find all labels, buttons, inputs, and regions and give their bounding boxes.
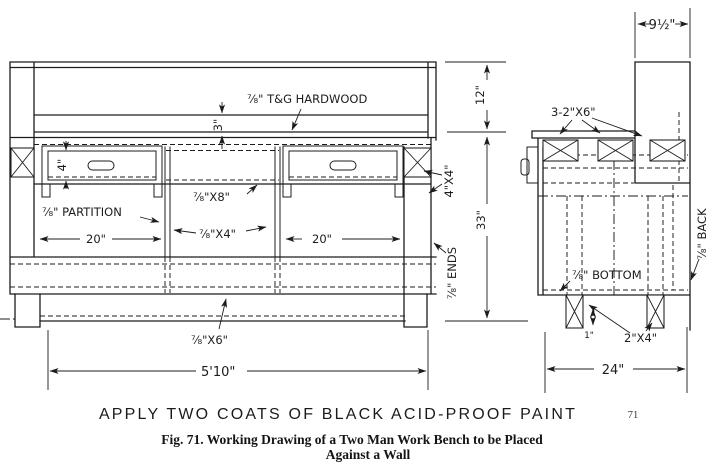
label-bench-height: 33" — [474, 210, 488, 230]
label-drawer-height: 4" — [55, 159, 69, 172]
label-overall-width: 5'10" — [201, 365, 235, 380]
label-bottom-rail: ⅞"X6" — [191, 333, 228, 347]
label-foot-offset: 1" — [584, 331, 594, 341]
label-top-depth: 9½" — [649, 18, 676, 33]
page-number: 71 — [628, 410, 639, 421]
label-top-frame: 3-2"X6" — [551, 105, 596, 119]
label-ends: ⅞" ENDS — [445, 247, 459, 299]
side-drawer-front — [521, 147, 538, 183]
front-right-foot — [404, 294, 427, 327]
label-bay-left: 20" — [86, 232, 106, 246]
side-elevation: 9½" 3-2"X6" ⅞" BOTTOM ⅞" BACK 2"X4" 1" — [521, 8, 709, 393]
label-top-material: ⅞" T&G HARDWOOD — [247, 92, 367, 106]
figure-caption-line1: Fig. 71. Working Drawing of a Two Man Wo… — [161, 432, 543, 447]
label-back-panel: ⅞" BACK — [695, 208, 709, 260]
label-side-leg-size: 2"X4" — [624, 331, 657, 345]
top-frame-sections — [543, 140, 685, 161]
figure-caption-line2: Against a Wall — [326, 447, 411, 462]
front-elevation: ⅞" T&G HARDWOOD 3" 4" ⅞" PARTITION ⅞"X8"… — [0, 62, 528, 390]
front-right-leg-section — [404, 148, 431, 177]
label-apron-height: 3" — [211, 119, 225, 132]
label-rail-4: ⅞"X4" — [199, 227, 236, 241]
side-drawer-pull — [521, 159, 529, 175]
captions: APPLY TWO COATS OF BLACK ACID-PROOF PAIN… — [99, 406, 638, 462]
left-drawer-pull — [88, 161, 114, 170]
side-dimensions: 9½" 3-2"X6" ⅞" BOTTOM ⅞" BACK 2"X4" 1" — [545, 8, 709, 393]
label-overall-depth: 24" — [602, 363, 625, 378]
label-partition: ⅞" PARTITION — [42, 205, 122, 219]
label-bottom-panel: ⅞" BOTTOM — [572, 268, 642, 282]
paint-note: APPLY TWO COATS OF BLACK ACID-PROOF PAIN… — [99, 406, 577, 423]
right-drawer — [283, 146, 403, 197]
workbench-working-drawing: ⅞" T&G HARDWOOD 3" 4" ⅞" PARTITION ⅞"X8"… — [0, 0, 720, 464]
book-page: ⅞" T&G HARDWOOD 3" 4" ⅞" PARTITION ⅞"X8"… — [0, 0, 720, 464]
front-left-leg-section — [11, 148, 34, 177]
right-drawer-pull — [330, 161, 356, 170]
front-dimensions: ⅞" T&G HARDWOOD 3" 4" ⅞" PARTITION ⅞"X8"… — [40, 62, 528, 390]
label-back-height: 12" — [473, 85, 487, 105]
label-leg-size: 4"X4" — [442, 164, 456, 197]
label-rail-8: ⅞"X8" — [193, 190, 230, 204]
label-bay-right: 20" — [312, 232, 332, 246]
front-left-foot — [15, 294, 40, 327]
